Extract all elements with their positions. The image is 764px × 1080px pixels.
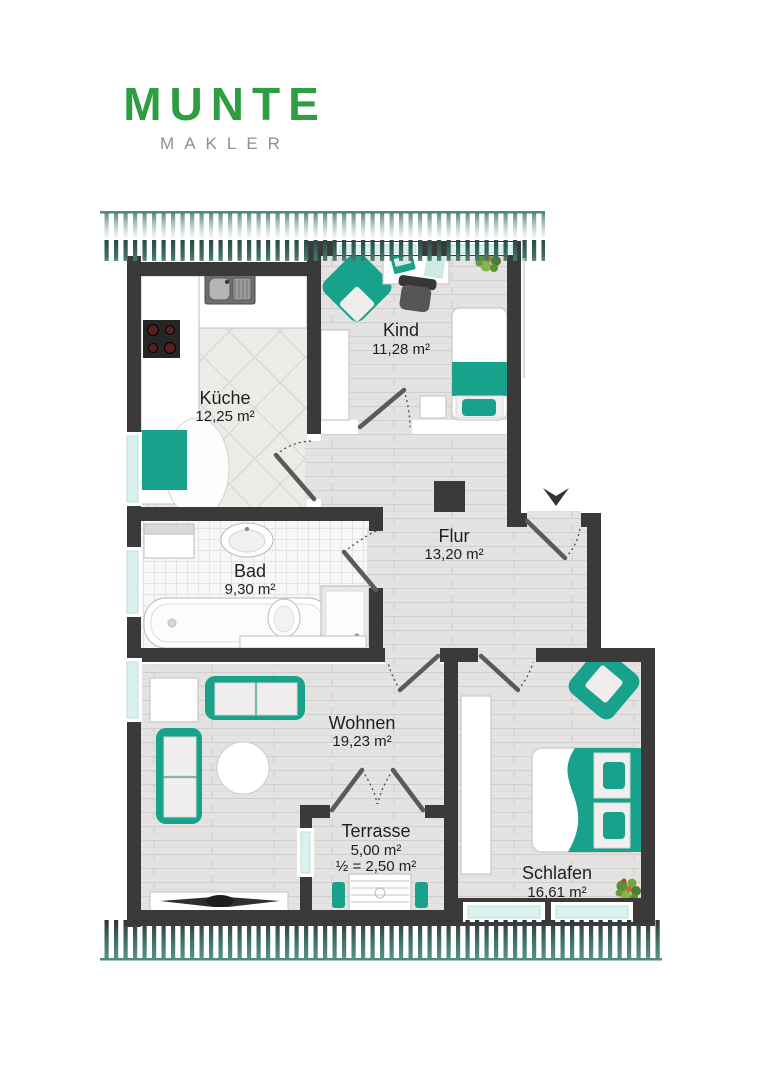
washing-machine xyxy=(144,524,194,558)
area-terrasse: 5,00 m² xyxy=(351,842,402,859)
area-flur: 13,20 m² xyxy=(424,546,483,563)
kind-wardrobe xyxy=(321,330,349,420)
terrace-chair-right xyxy=(415,882,428,908)
washbasin xyxy=(221,523,273,557)
brand-subtitle: MAKLER xyxy=(100,134,350,154)
kitchen-stove xyxy=(143,320,180,358)
schlafen-window-1 xyxy=(463,902,545,922)
area-kind: 11,28 m² xyxy=(372,341,430,358)
floor-plan: Küche 12,25 m² Kind 11,28 m² Bad 9,30 m²… xyxy=(95,205,670,970)
terrace-table xyxy=(349,874,411,912)
page: { "brand": { "name": "MUNTE", "subtitle"… xyxy=(0,0,764,1080)
label-bad: Bad xyxy=(234,561,266,581)
bad-radiator xyxy=(240,636,366,648)
label-schlafen: Schlafen xyxy=(522,863,592,883)
label-flur: Flur xyxy=(439,526,470,546)
sofa-top xyxy=(205,676,305,720)
roof-hatch-bottom xyxy=(100,920,662,961)
coffee-table xyxy=(217,742,269,794)
brand-logo: MUNTE MAKLER xyxy=(100,80,350,154)
area-bad: 9,30 m² xyxy=(225,581,276,598)
flur-column xyxy=(434,481,465,512)
area-schlafen: 16,61 m² xyxy=(527,884,586,901)
kind-nightstand xyxy=(420,396,446,418)
area-wohnen: 19,23 m² xyxy=(332,733,391,750)
left-window-bad xyxy=(123,547,142,617)
sofa-left xyxy=(156,728,202,824)
flur-floor-lower xyxy=(383,521,587,648)
left-window-kueche xyxy=(123,432,142,506)
schlafen-window-2 xyxy=(551,902,633,922)
kind-bed xyxy=(452,308,507,420)
label-kueche: Küche xyxy=(199,388,250,408)
area-kueche: 12,25 m² xyxy=(195,408,254,425)
side-table xyxy=(150,678,198,722)
double-bed xyxy=(532,748,641,852)
terrasse-window xyxy=(297,828,314,877)
label-kind: Kind xyxy=(383,320,419,340)
schlafen-wardrobe xyxy=(461,696,491,874)
area-half-terrasse: ½ = 2,50 m² xyxy=(336,858,416,875)
tv-sideboard xyxy=(150,892,288,911)
entrance-arrow-icon xyxy=(543,488,569,506)
brand-name: MUNTE xyxy=(100,80,350,128)
label-terrasse: Terrasse xyxy=(341,821,410,841)
terrace-chair-left xyxy=(332,882,345,908)
kitchen-sink xyxy=(205,274,255,304)
label-wohnen: Wohnen xyxy=(329,713,396,733)
left-window-wohnen xyxy=(123,658,142,722)
